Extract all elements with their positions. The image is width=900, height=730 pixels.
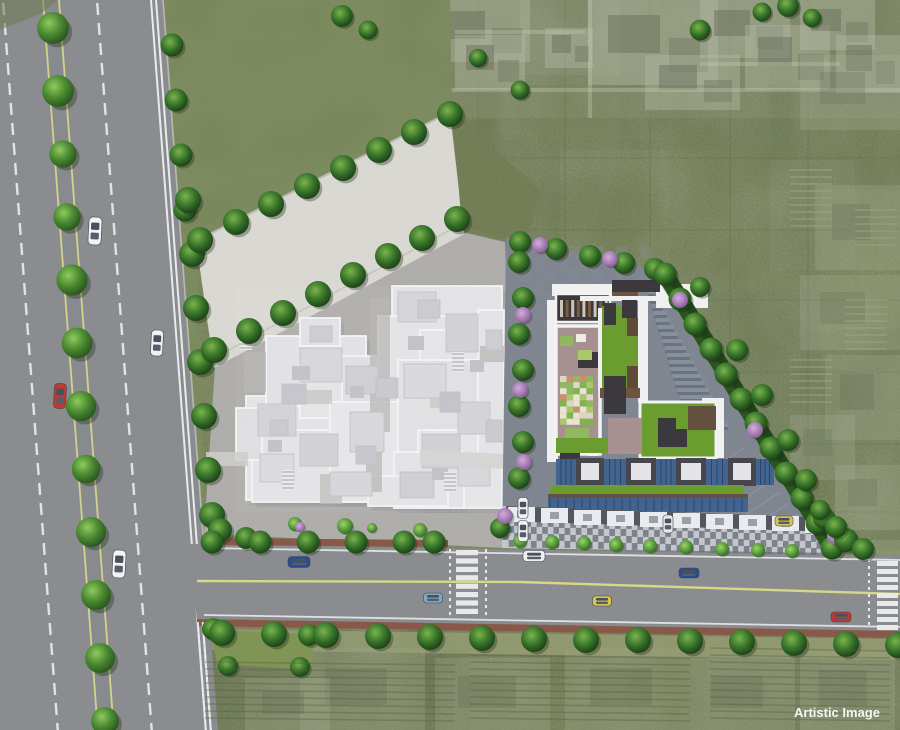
svg-text:Artistic Image: Artistic Image <box>794 705 880 720</box>
